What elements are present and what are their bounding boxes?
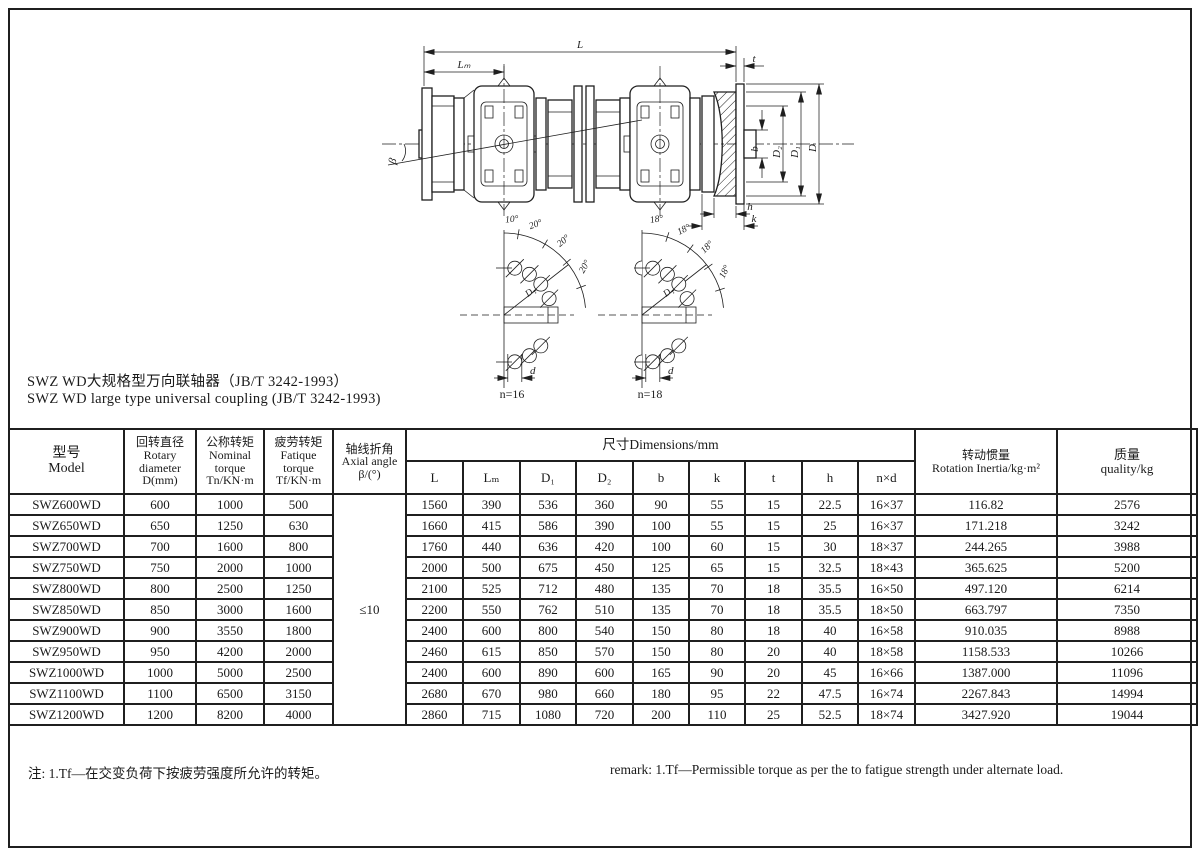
table-cell: 500 bbox=[264, 494, 333, 515]
table-cell: 1000 bbox=[264, 557, 333, 578]
table-cell: 636 bbox=[520, 536, 576, 557]
header-line: Rotary bbox=[125, 449, 195, 462]
angle-label: 18° bbox=[717, 263, 733, 280]
table-row: SWZ700WD70016008001760440636420100601530… bbox=[9, 536, 1197, 557]
table-cell: 8200 bbox=[196, 704, 264, 725]
table-cell: 15 bbox=[745, 557, 802, 578]
col-header-Lm: Lₘ bbox=[463, 461, 520, 494]
table-cell: 2000 bbox=[196, 557, 264, 578]
table-cell: 850 bbox=[520, 641, 576, 662]
table-cell: 18×37 bbox=[858, 536, 915, 557]
table-cell: 22 bbox=[745, 683, 802, 704]
model-cell: SWZ1000WD bbox=[9, 662, 124, 683]
bolt-circle-view-n18: 18° 18° 18° 18° D₁ d bbox=[598, 213, 733, 401]
table-cell: 910.035 bbox=[915, 620, 1057, 641]
table-cell: 510 bbox=[576, 599, 633, 620]
table-cell: 720 bbox=[576, 704, 633, 725]
table-cell: 540 bbox=[576, 620, 633, 641]
table-cell: 244.265 bbox=[915, 536, 1057, 557]
table-cell: 18 bbox=[745, 599, 802, 620]
spec-table: 型号 Model 回转直径 Rotary diameter D(mm) 公称转矩… bbox=[8, 428, 1198, 726]
title-zh: SWZ WD大规格型万向联轴器（JB/T 3242-1993） bbox=[27, 370, 348, 391]
table-row: SWZ950WD95042002000246061585057015080204… bbox=[9, 641, 1197, 662]
table-cell: 670 bbox=[463, 683, 520, 704]
col-header-quality: 质量 quality/kg bbox=[1057, 429, 1197, 494]
table-cell: 16×50 bbox=[858, 578, 915, 599]
header-line: Axial angle bbox=[334, 455, 405, 468]
angle-label: 20° bbox=[555, 232, 572, 249]
angle-label: 20° bbox=[528, 217, 544, 232]
table-cell: 95 bbox=[689, 683, 745, 704]
table-cell: 6500 bbox=[196, 683, 264, 704]
table-cell: 5000 bbox=[196, 662, 264, 683]
col-header-h: h bbox=[802, 461, 858, 494]
table-cell: 2100 bbox=[406, 578, 463, 599]
table-cell: 70 bbox=[689, 578, 745, 599]
table-cell: 480 bbox=[576, 578, 633, 599]
header-line: β/(°) bbox=[334, 468, 405, 481]
table-cell: 52.5 bbox=[802, 704, 858, 725]
table-row: SWZ650WD65012506301660415586390100551525… bbox=[9, 515, 1197, 536]
table-cell: 3427.920 bbox=[915, 704, 1057, 725]
table-cell: 675 bbox=[520, 557, 576, 578]
table-cell: 60 bbox=[689, 536, 745, 557]
table-cell: 1387.000 bbox=[915, 662, 1057, 683]
table-cell: 550 bbox=[463, 599, 520, 620]
header-line: Fatique bbox=[265, 449, 332, 462]
table-cell: 2680 bbox=[406, 683, 463, 704]
dim-k: k bbox=[752, 213, 758, 225]
table-cell: 80 bbox=[689, 641, 745, 662]
table-cell: 980 bbox=[520, 683, 576, 704]
model-cell: SWZ1100WD bbox=[9, 683, 124, 704]
dim-Lm: Lₘ bbox=[457, 59, 471, 71]
header-line: Tn/KN·m bbox=[197, 474, 263, 487]
table-cell: 32.5 bbox=[802, 557, 858, 578]
table-cell: 700 bbox=[124, 536, 196, 557]
table-cell: 800 bbox=[124, 578, 196, 599]
table-cell: 420 bbox=[576, 536, 633, 557]
angle-label: 18° bbox=[699, 239, 716, 256]
header-line: quality/kg bbox=[1058, 462, 1196, 476]
table-cell: 3550 bbox=[196, 620, 264, 641]
dim-D2: D₂ bbox=[771, 146, 783, 159]
bolt-circle-view-n16: 10° 20° 20° 20° D₁ bbox=[460, 213, 593, 401]
table-cell: 16×66 bbox=[858, 662, 915, 683]
table-cell: 570 bbox=[576, 641, 633, 662]
table-cell: 2000 bbox=[406, 557, 463, 578]
table-cell: 2267.843 bbox=[915, 683, 1057, 704]
table-cell: 1250 bbox=[196, 515, 264, 536]
table-cell: 525 bbox=[463, 578, 520, 599]
table-cell: 55 bbox=[689, 515, 745, 536]
col-header-fatigue-torque: 疲劳转矩 Fatique torque Tf/KN·m bbox=[264, 429, 333, 494]
table-cell: 150 bbox=[633, 641, 689, 662]
table-cell: 800 bbox=[264, 536, 333, 557]
table-cell: 890 bbox=[520, 662, 576, 683]
table-cell: 80 bbox=[689, 620, 745, 641]
table-cell: 2400 bbox=[406, 662, 463, 683]
table-cell: 586 bbox=[520, 515, 576, 536]
table-cell: 650 bbox=[124, 515, 196, 536]
table-cell: 1200 bbox=[124, 704, 196, 725]
table-cell: 18×50 bbox=[858, 599, 915, 620]
model-cell: SWZ650WD bbox=[9, 515, 124, 536]
table-cell: 15 bbox=[745, 515, 802, 536]
col-header-model: 型号 Model bbox=[9, 429, 124, 494]
table-cell: 19044 bbox=[1057, 704, 1197, 725]
table-cell: 2000 bbox=[264, 641, 333, 662]
table-cell: 14994 bbox=[1057, 683, 1197, 704]
col-header-nominal-torque: 公称转矩 Nominal torque Tn/KN·m bbox=[196, 429, 264, 494]
col-header-rotary-diameter: 回转直径 Rotary diameter D(mm) bbox=[124, 429, 196, 494]
table-cell: 90 bbox=[633, 494, 689, 515]
table-cell: 2500 bbox=[196, 578, 264, 599]
table-cell: 18×58 bbox=[858, 641, 915, 662]
col-header-b: b bbox=[633, 461, 689, 494]
table-cell: 2400 bbox=[406, 620, 463, 641]
col-header-D1: D₁ bbox=[520, 461, 576, 494]
table-cell: 600 bbox=[124, 494, 196, 515]
table-cell: 16×37 bbox=[858, 494, 915, 515]
table-cell: 110 bbox=[689, 704, 745, 725]
note-zh: 注: 1.Tf—在交变负荷下按疲劳强度所允许的转矩。 bbox=[28, 762, 328, 782]
table-cell: 47.5 bbox=[802, 683, 858, 704]
header-line: Rotation Inertia/kg·m² bbox=[916, 462, 1056, 475]
table-cell: 712 bbox=[520, 578, 576, 599]
table-cell: 16×58 bbox=[858, 620, 915, 641]
table-cell: 3988 bbox=[1057, 536, 1197, 557]
table-cell: 1760 bbox=[406, 536, 463, 557]
table-cell: 4000 bbox=[264, 704, 333, 725]
header-line: 型号 bbox=[10, 447, 123, 462]
table-cell: 2500 bbox=[264, 662, 333, 683]
table-cell: 950 bbox=[124, 641, 196, 662]
col-header-L: L bbox=[406, 461, 463, 494]
table-row: SWZ1100WD1100650031502680670980660180952… bbox=[9, 683, 1197, 704]
table-cell: 1800 bbox=[264, 620, 333, 641]
table-cell: 18 bbox=[745, 620, 802, 641]
angle-label: 18° bbox=[675, 222, 692, 238]
table-cell: 4200 bbox=[196, 641, 264, 662]
table-row: SWZ750WD75020001000200050067545012565153… bbox=[9, 557, 1197, 578]
table-cell: 70 bbox=[689, 599, 745, 620]
table-cell: 18×43 bbox=[858, 557, 915, 578]
col-header-D2: D₂ bbox=[576, 461, 633, 494]
angle-label: 18° bbox=[649, 213, 664, 226]
table-cell: 600 bbox=[576, 662, 633, 683]
table-cell: 125 bbox=[633, 557, 689, 578]
table-cell: 1560 bbox=[406, 494, 463, 515]
col-header-t: t bbox=[745, 461, 802, 494]
table-cell: 600 bbox=[463, 620, 520, 641]
table-row: SWZ1000WD1000500025002400600890600165902… bbox=[9, 662, 1197, 683]
table-cell: 15 bbox=[745, 494, 802, 515]
table-cell: 536 bbox=[520, 494, 576, 515]
table-cell: 1000 bbox=[196, 494, 264, 515]
table-cell: 415 bbox=[463, 515, 520, 536]
title-en: SWZ WD large type universal coupling (JB… bbox=[27, 391, 381, 408]
col-header-dimensions: 尺寸Dimensions/mm bbox=[406, 429, 915, 461]
angle-label: 20° bbox=[577, 258, 593, 275]
table-cell: 1600 bbox=[196, 536, 264, 557]
header-line: D(mm) bbox=[125, 474, 195, 487]
table-cell: 100 bbox=[633, 536, 689, 557]
table-cell: 40 bbox=[802, 641, 858, 662]
table-cell: 165 bbox=[633, 662, 689, 683]
table-cell: 850 bbox=[124, 599, 196, 620]
table-cell: 497.120 bbox=[915, 578, 1057, 599]
table-cell: 135 bbox=[633, 578, 689, 599]
table-cell: 200 bbox=[633, 704, 689, 725]
table-cell: 600 bbox=[463, 662, 520, 683]
table-cell: 25 bbox=[745, 704, 802, 725]
table-cell: 715 bbox=[463, 704, 520, 725]
col-header-nxd: n×d bbox=[858, 461, 915, 494]
dim-b: b bbox=[749, 146, 761, 152]
dim-D: D bbox=[807, 144, 819, 153]
table-cell: 390 bbox=[576, 515, 633, 536]
table-cell: 7350 bbox=[1057, 599, 1197, 620]
table-cell: 116.82 bbox=[915, 494, 1057, 515]
table-cell: 65 bbox=[689, 557, 745, 578]
table-cell: 1000 bbox=[124, 662, 196, 683]
table-cell: 1080 bbox=[520, 704, 576, 725]
col-header-axial-angle: 轴线折角 Axial angle β/(°) bbox=[333, 429, 406, 494]
table-cell: 800 bbox=[520, 620, 576, 641]
dim-h: h bbox=[747, 201, 753, 213]
table-cell: 1250 bbox=[264, 578, 333, 599]
table-cell: 660 bbox=[576, 683, 633, 704]
table-cell: 1158.533 bbox=[915, 641, 1057, 662]
model-cell: SWZ900WD bbox=[9, 620, 124, 641]
header-line: 转动惯量 bbox=[916, 449, 1056, 462]
table-row: SWZ1200WD1200820040002860715108072020011… bbox=[9, 704, 1197, 725]
table-cell: 20 bbox=[745, 662, 802, 683]
table-cell: 500 bbox=[463, 557, 520, 578]
table-cell: 630 bbox=[264, 515, 333, 536]
table-cell: 10266 bbox=[1057, 641, 1197, 662]
angle-label: 10° bbox=[505, 213, 519, 225]
model-cell: SWZ700WD bbox=[9, 536, 124, 557]
table-cell: 55 bbox=[689, 494, 745, 515]
table-cell: 6214 bbox=[1057, 578, 1197, 599]
table-cell: 1600 bbox=[264, 599, 333, 620]
model-cell: SWZ750WD bbox=[9, 557, 124, 578]
table-cell: 450 bbox=[576, 557, 633, 578]
table-body: SWZ600WD6001000500≤101560390536360905515… bbox=[9, 494, 1197, 725]
table-cell: 171.218 bbox=[915, 515, 1057, 536]
table-cell: 8988 bbox=[1057, 620, 1197, 641]
table-cell: 22.5 bbox=[802, 494, 858, 515]
table-cell: 3150 bbox=[264, 683, 333, 704]
note-en: remark: 1.Tf—Permissible torque as per t… bbox=[610, 762, 1063, 778]
table-cell: 18×74 bbox=[858, 704, 915, 725]
table-cell: 11096 bbox=[1057, 662, 1197, 683]
table-cell: 40 bbox=[802, 620, 858, 641]
coupling-section-view: β bbox=[386, 66, 756, 216]
header-line: Model bbox=[10, 462, 123, 477]
table-cell: 16×74 bbox=[858, 683, 915, 704]
table-cell: 20 bbox=[745, 641, 802, 662]
table-cell: 45 bbox=[802, 662, 858, 683]
table-row: SWZ600WD6001000500≤101560390536360905515… bbox=[9, 494, 1197, 515]
bolt-count-n16: n=16 bbox=[500, 387, 525, 401]
table-cell: 90 bbox=[689, 662, 745, 683]
dim-L: L bbox=[576, 39, 583, 51]
table-cell: 1100 bbox=[124, 683, 196, 704]
technical-drawing: β L Lₘ t b D₂ bbox=[10, 10, 1194, 422]
model-cell: SWZ950WD bbox=[9, 641, 124, 662]
header-line: Tf/KN·m bbox=[265, 474, 332, 487]
table-cell: 25 bbox=[802, 515, 858, 536]
bolt-count-n18: n=18 bbox=[638, 387, 663, 401]
table-cell: 440 bbox=[463, 536, 520, 557]
page-frame: β L Lₘ t b D₂ bbox=[8, 8, 1192, 848]
model-cell: SWZ1200WD bbox=[9, 704, 124, 725]
model-cell: SWZ850WD bbox=[9, 599, 124, 620]
table-cell: 2460 bbox=[406, 641, 463, 662]
table-cell: 5200 bbox=[1057, 557, 1197, 578]
header-line: Nominal bbox=[197, 449, 263, 462]
table-row: SWZ850WD85030001600220055076251013570183… bbox=[9, 599, 1197, 620]
table-cell: 35.5 bbox=[802, 599, 858, 620]
dim-t: t bbox=[752, 53, 756, 65]
table-cell: 3242 bbox=[1057, 515, 1197, 536]
table-cell: 30 bbox=[802, 536, 858, 557]
table-cell: 900 bbox=[124, 620, 196, 641]
table-cell: 135 bbox=[633, 599, 689, 620]
table-cell: 750 bbox=[124, 557, 196, 578]
table-cell: 2576 bbox=[1057, 494, 1197, 515]
table-cell: 18 bbox=[745, 578, 802, 599]
col-header-k: k bbox=[689, 461, 745, 494]
table-cell: 100 bbox=[633, 515, 689, 536]
table-cell: 15 bbox=[745, 536, 802, 557]
table-cell: 663.797 bbox=[915, 599, 1057, 620]
table-cell: 2860 bbox=[406, 704, 463, 725]
table-row: SWZ800WD80025001250210052571248013570183… bbox=[9, 578, 1197, 599]
col-header-inertia: 转动惯量 Rotation Inertia/kg·m² bbox=[915, 429, 1057, 494]
table-cell: 150 bbox=[633, 620, 689, 641]
model-cell: SWZ600WD bbox=[9, 494, 124, 515]
dim-d: d bbox=[530, 365, 536, 377]
table-row: SWZ900WD90035501800240060080054015080184… bbox=[9, 620, 1197, 641]
table-cell: 390 bbox=[463, 494, 520, 515]
header-line: 质量 bbox=[1058, 448, 1196, 462]
table-cell: 3000 bbox=[196, 599, 264, 620]
table-cell: 2200 bbox=[406, 599, 463, 620]
table-cell: 180 bbox=[633, 683, 689, 704]
table-cell: 365.625 bbox=[915, 557, 1057, 578]
table-cell: 615 bbox=[463, 641, 520, 662]
dim-d: d bbox=[668, 365, 674, 377]
table-cell: 360 bbox=[576, 494, 633, 515]
table-cell: 16×37 bbox=[858, 515, 915, 536]
dim-D1: D₁ bbox=[789, 146, 801, 159]
table-cell: 35.5 bbox=[802, 578, 858, 599]
model-cell: SWZ800WD bbox=[9, 578, 124, 599]
table-cell: 1660 bbox=[406, 515, 463, 536]
table-cell: 762 bbox=[520, 599, 576, 620]
axial-angle-cell: ≤10 bbox=[333, 494, 406, 725]
